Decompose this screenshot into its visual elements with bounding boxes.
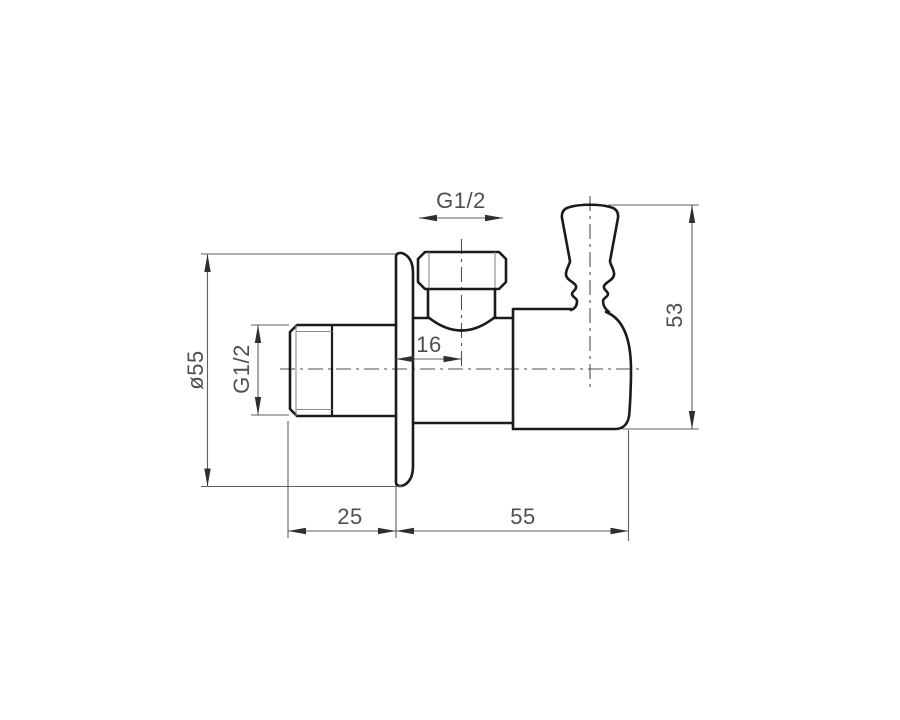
dimensions: G1/2 16 ø55 G1/2 [183,188,699,541]
valve-outline [290,205,631,486]
arrowhead [689,205,695,223]
dim-label-inlet-length: 25 [337,504,362,529]
arrowhead [255,325,261,343]
arrowhead [419,215,437,221]
arrowhead [204,469,210,487]
arrowhead [288,528,306,534]
dim-label-overall-height: 53 [662,302,687,327]
arrowhead [204,254,210,272]
dim-label-inlet-thread: G1/2 [229,344,254,394]
arrowhead [689,411,695,429]
dim-body-length: 55 [396,430,629,541]
dim-inlet-thread: G1/2 [229,325,289,415]
arrowhead [611,528,629,534]
inlet-pipe-outline [290,325,396,416]
arrowhead [396,528,414,534]
dim-label-outlet-offset: 16 [416,332,441,357]
dim-label-outlet-thread: G1/2 [436,188,486,213]
angle-valve-technical-drawing: G1/2 16 ø55 G1/2 [0,0,900,720]
dim-outlet-thread: G1/2 [419,188,503,221]
dim-flange-diameter: ø55 [183,254,404,487]
dim-label-body-length: 55 [510,504,535,529]
dim-overall-height: 53 [608,205,699,429]
arrowhead [396,356,414,362]
dim-inlet-length: 25 [288,421,396,538]
arrowhead [444,356,462,362]
dim-outlet-offset: 16 [396,332,462,362]
arrowhead [378,528,396,534]
centerlines [280,196,640,390]
arrowhead [485,215,503,221]
technical-drawing-page: G1/2 16 ø55 G1/2 [0,0,900,720]
arrowhead [255,397,261,415]
dim-label-flange-diameter: ø55 [183,350,208,389]
